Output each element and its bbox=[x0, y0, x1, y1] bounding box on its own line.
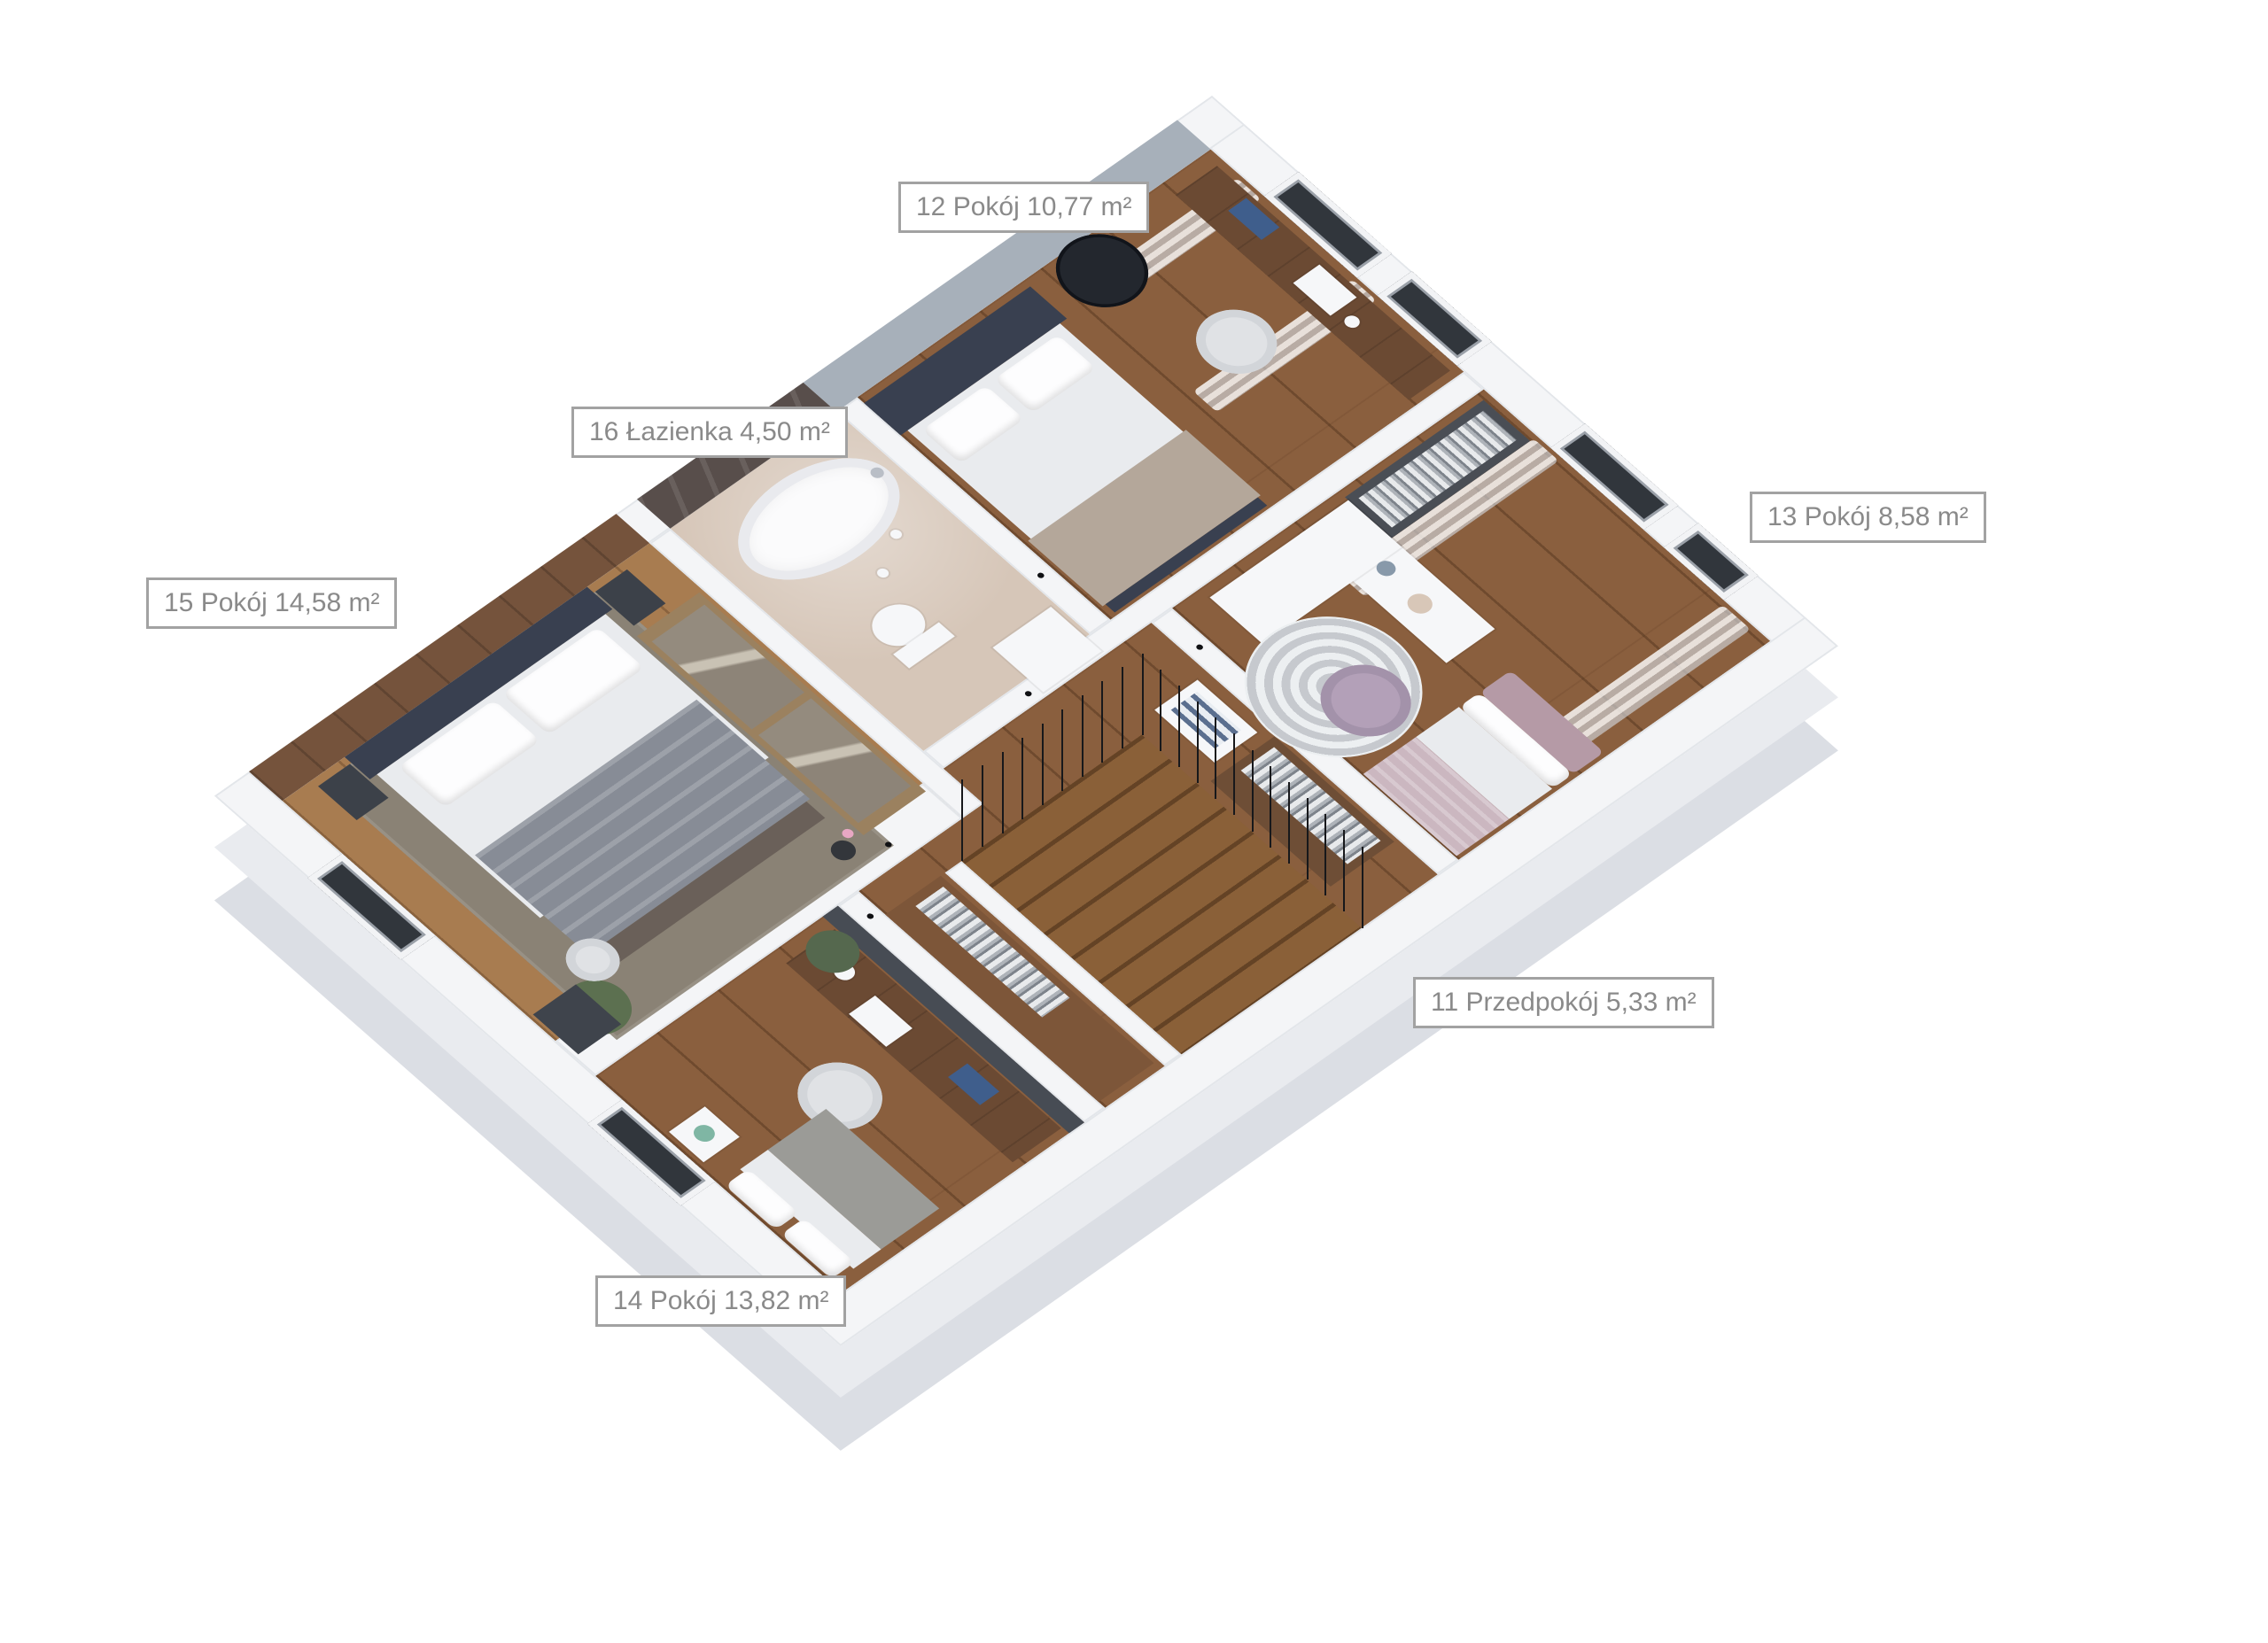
stair-baluster bbox=[1061, 709, 1063, 791]
stair-baluster bbox=[1042, 724, 1044, 805]
floorplan-page: { "floorplan": { "title": "Rzut piętra /… bbox=[0, 0, 2268, 1643]
stair-baluster bbox=[1270, 766, 1271, 848]
label-room-12: 12 Pokój 10,77 m² bbox=[898, 182, 1149, 233]
label-room-16: 16 Łazienka 4,50 m² bbox=[571, 407, 848, 458]
stair-baluster bbox=[1362, 847, 1363, 928]
label-room-14: 14 Pokój 13,82 m² bbox=[595, 1275, 846, 1327]
stair-baluster bbox=[1142, 654, 1144, 735]
stair-baluster bbox=[982, 765, 983, 847]
stair-baluster bbox=[1307, 798, 1309, 880]
stair-baluster bbox=[1101, 681, 1103, 763]
stair-baluster bbox=[1178, 686, 1180, 767]
stair-baluster bbox=[1324, 814, 1326, 895]
stair-baluster bbox=[1160, 670, 1161, 751]
stair-baluster bbox=[1021, 738, 1023, 819]
stair-baluster bbox=[1233, 733, 1235, 815]
label-room-13: 13 Pokój 8,58 m² bbox=[1750, 492, 1986, 543]
stair-baluster bbox=[1252, 750, 1254, 832]
stair-baluster bbox=[1343, 830, 1345, 911]
building-footprint bbox=[214, 96, 1838, 1346]
stair-baluster bbox=[1288, 782, 1290, 864]
stair-baluster bbox=[1122, 667, 1123, 748]
stair-baluster bbox=[1082, 695, 1084, 777]
stair-baluster bbox=[1002, 752, 1004, 833]
label-room-15: 15 Pokój 14,58 m² bbox=[146, 577, 397, 629]
floorplan-render bbox=[214, 96, 1838, 1346]
label-room-11: 11 Przedpokój 5,33 m² bbox=[1413, 977, 1714, 1028]
stair-baluster bbox=[1197, 701, 1199, 783]
stair-baluster bbox=[1215, 717, 1216, 799]
stair-baluster bbox=[961, 779, 963, 861]
